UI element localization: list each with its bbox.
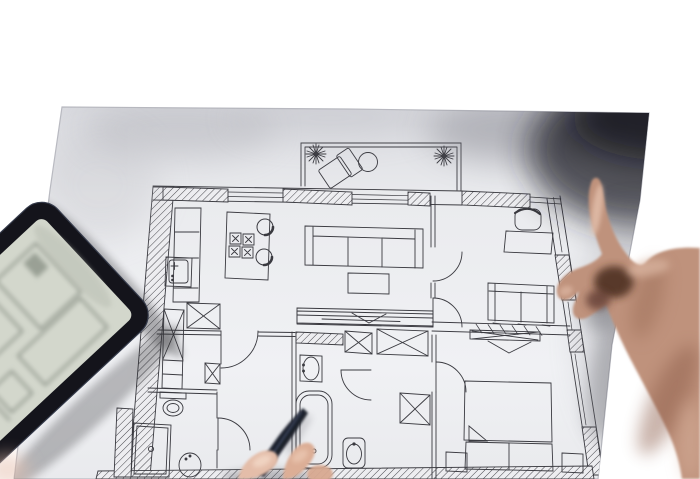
potted-plant-left (306, 144, 326, 164)
photo-scene (0, 0, 700, 479)
